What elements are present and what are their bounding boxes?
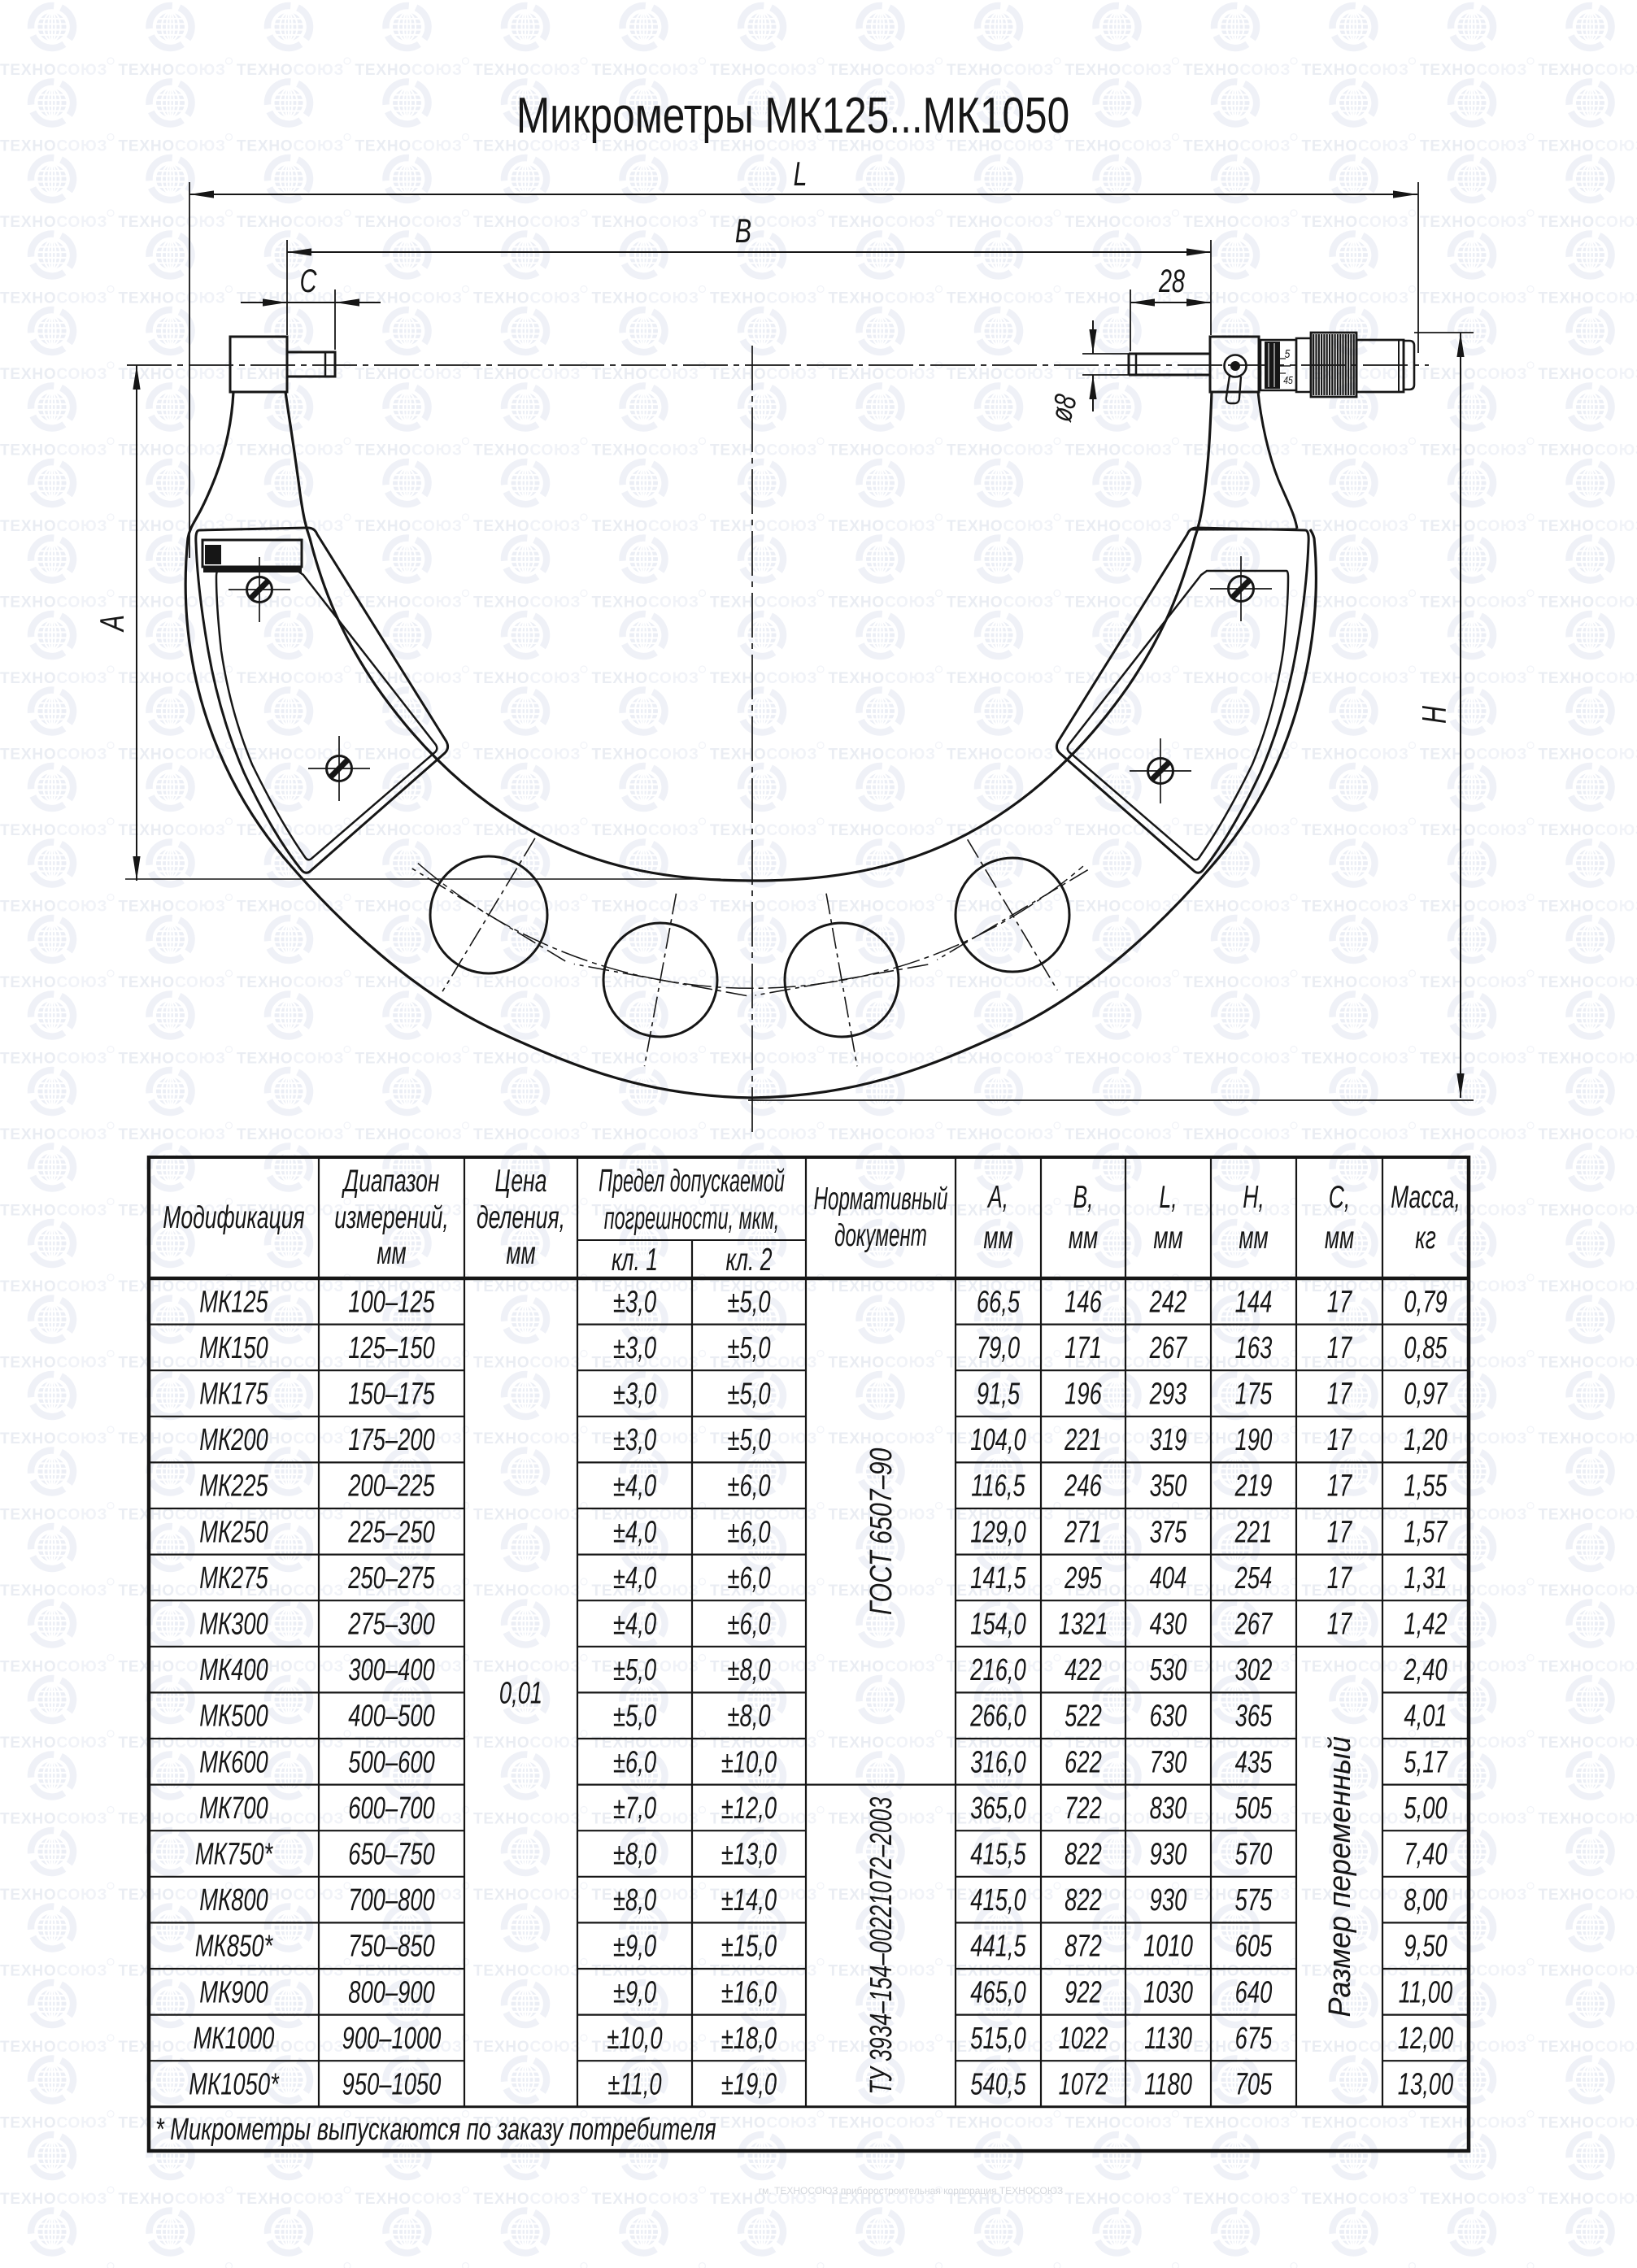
svg-text:МК800: МК800 [199, 1883, 268, 1918]
svg-text:МК225: МК225 [199, 1469, 268, 1503]
svg-text:622: 622 [1064, 1745, 1102, 1779]
svg-text:кл. 2: кл. 2 [726, 1243, 773, 1278]
svg-text:45: 45 [1283, 375, 1293, 386]
svg-text:МК600: МК600 [199, 1745, 268, 1779]
svg-text:Микрометры МК125...МК1050: Микрометры МК125...МК1050 [516, 87, 1069, 144]
svg-text:11,00: 11,00 [1399, 1975, 1453, 2009]
svg-text:4,01: 4,01 [1404, 1699, 1447, 1733]
svg-text:822: 822 [1064, 1883, 1102, 1918]
svg-text:0,01: 0,01 [499, 1676, 542, 1710]
svg-text:750–850: 750–850 [348, 1929, 435, 1963]
svg-text:кл. 1: кл. 1 [612, 1243, 658, 1278]
svg-text:±6,0: ±6,0 [727, 1561, 771, 1595]
svg-text:17: 17 [1327, 1515, 1353, 1549]
svg-text:422: 422 [1064, 1653, 1102, 1687]
svg-text:L: L [794, 155, 808, 193]
svg-text:141,5: 141,5 [970, 1561, 1026, 1595]
svg-text:МК125: МК125 [199, 1285, 268, 1319]
svg-text:430: 430 [1150, 1607, 1187, 1641]
svg-text:822: 822 [1064, 1837, 1102, 1871]
svg-text:±3,0: ±3,0 [613, 1331, 657, 1365]
svg-text:830: 830 [1150, 1791, 1187, 1826]
svg-text:±5,0: ±5,0 [727, 1377, 771, 1411]
svg-text:350: 350 [1150, 1469, 1187, 1503]
svg-text:175: 175 [1235, 1377, 1273, 1411]
svg-text:5,17: 5,17 [1404, 1745, 1448, 1779]
svg-text:±6,0: ±6,0 [727, 1515, 771, 1549]
svg-text:±4,0: ±4,0 [613, 1469, 657, 1503]
svg-text:225–250: 225–250 [347, 1515, 435, 1549]
svg-text:МК400: МК400 [199, 1653, 268, 1687]
svg-text:465,0: 465,0 [970, 1975, 1026, 2009]
svg-text:Размер переменный: Размер переменный [1321, 1736, 1356, 2017]
svg-text:В,: В, [1073, 1180, 1093, 1215]
svg-text:575: 575 [1235, 1883, 1273, 1918]
svg-text:±8,0: ±8,0 [727, 1653, 771, 1687]
svg-text:163: 163 [1235, 1331, 1273, 1365]
svg-text:175–200: 175–200 [348, 1423, 435, 1457]
svg-text:91,5: 91,5 [977, 1377, 1021, 1411]
svg-text:522: 522 [1064, 1699, 1102, 1733]
svg-text:515,0: 515,0 [970, 2022, 1026, 2056]
svg-text:17: 17 [1327, 1469, 1353, 1503]
svg-text:0,97: 0,97 [1404, 1377, 1448, 1411]
svg-text:0,79: 0,79 [1404, 1285, 1447, 1319]
svg-text:МК1000: МК1000 [194, 2022, 275, 2056]
svg-text:Предел допускаемой: Предел допускаемой [599, 1163, 785, 1199]
svg-text:±4,0: ±4,0 [613, 1515, 657, 1549]
svg-text:505: 505 [1235, 1791, 1273, 1826]
svg-text:Цена: Цена [495, 1164, 547, 1199]
svg-text:605: 605 [1235, 1929, 1273, 1963]
svg-text:±10,0: ±10,0 [721, 1745, 777, 1779]
svg-text:79,0: 79,0 [977, 1331, 1021, 1365]
svg-text:1030: 1030 [1143, 1975, 1193, 2009]
svg-text:1,57: 1,57 [1404, 1515, 1448, 1549]
svg-text:±14,0: ±14,0 [721, 1883, 777, 1918]
svg-text:700–800: 700–800 [348, 1883, 435, 1918]
svg-text:146: 146 [1064, 1285, 1102, 1319]
svg-text:МК200: МК200 [199, 1423, 268, 1457]
svg-text:13,00: 13,00 [1398, 2067, 1454, 2101]
svg-text:1130: 1130 [1144, 2022, 1192, 2056]
svg-text:±4,0: ±4,0 [613, 1607, 657, 1641]
svg-text:1010: 1010 [1143, 1929, 1193, 1963]
svg-text:242: 242 [1149, 1285, 1186, 1319]
svg-text:300–400: 300–400 [348, 1653, 435, 1687]
svg-text:17: 17 [1327, 1377, 1353, 1411]
svg-text:±10,0: ±10,0 [607, 2022, 663, 2056]
svg-text:730: 730 [1150, 1745, 1187, 1779]
svg-text:66,5: 66,5 [977, 1285, 1021, 1319]
svg-text:±6,0: ±6,0 [727, 1469, 771, 1503]
svg-text:МК300: МК300 [199, 1607, 268, 1641]
svg-text:мм: мм [1325, 1221, 1354, 1256]
svg-text:319: 319 [1150, 1423, 1187, 1457]
svg-text:ГОСТ 6507–90: ГОСТ 6507–90 [864, 1448, 899, 1615]
svg-text:435: 435 [1235, 1745, 1273, 1779]
svg-text:540,5: 540,5 [970, 2067, 1026, 2101]
svg-text:2,40: 2,40 [1404, 1653, 1448, 1687]
svg-text:±8,0: ±8,0 [613, 1837, 657, 1871]
svg-text:267: 267 [1149, 1331, 1188, 1365]
svg-text:Диапазон: Диапазон [341, 1164, 439, 1199]
svg-text:±4,0: ±4,0 [613, 1561, 657, 1595]
svg-text:МК150: МК150 [199, 1331, 268, 1365]
svg-text:измерений,: измерений, [334, 1200, 449, 1235]
svg-text:5,00: 5,00 [1404, 1791, 1448, 1826]
svg-text:404: 404 [1150, 1561, 1187, 1595]
svg-text:219: 219 [1234, 1469, 1272, 1503]
svg-text:кг: кг [1415, 1221, 1436, 1256]
svg-text:0,85: 0,85 [1404, 1331, 1448, 1365]
svg-text:±9,0: ±9,0 [613, 1929, 657, 1963]
svg-text:МК175: МК175 [199, 1377, 268, 1411]
svg-text:705: 705 [1235, 2067, 1273, 2101]
svg-text:28: 28 [1158, 263, 1185, 299]
svg-text:9,50: 9,50 [1404, 1929, 1448, 1963]
svg-text:Модификация: Модификация [163, 1200, 305, 1235]
svg-text:±7,0: ±7,0 [613, 1791, 657, 1826]
svg-text:±5,0: ±5,0 [727, 1423, 771, 1457]
svg-text:1321: 1321 [1059, 1607, 1108, 1641]
svg-text:МК275: МК275 [199, 1561, 268, 1595]
svg-text:Масса,: Масса, [1391, 1180, 1461, 1215]
svg-text:±3,0: ±3,0 [613, 1377, 657, 1411]
svg-text:640: 640 [1235, 1975, 1273, 2009]
svg-text:100–125: 100–125 [348, 1285, 435, 1319]
svg-text:266,0: 266,0 [969, 1699, 1026, 1733]
svg-text:МК850*: МК850* [195, 1929, 273, 1963]
svg-text:930: 930 [1150, 1883, 1187, 1918]
svg-text:246: 246 [1064, 1469, 1102, 1503]
svg-text:500–600: 500–600 [348, 1745, 435, 1779]
svg-text:922: 922 [1064, 1975, 1102, 2009]
svg-text:17: 17 [1327, 1285, 1353, 1319]
svg-text:630: 630 [1150, 1699, 1187, 1733]
svg-text:17: 17 [1327, 1331, 1353, 1365]
svg-text:400–500: 400–500 [348, 1699, 435, 1733]
svg-text:МК700: МК700 [199, 1791, 268, 1826]
svg-text:600–700: 600–700 [348, 1791, 435, 1826]
svg-text:C: C [300, 263, 317, 299]
svg-text:L,: L, [1159, 1180, 1177, 1215]
svg-text:ТУ 3934–154–00221072–2003: ТУ 3934–154–00221072–2003 [863, 1797, 898, 2095]
svg-text:±3,0: ±3,0 [613, 1285, 657, 1319]
svg-text:930: 930 [1150, 1837, 1187, 1871]
svg-text:221: 221 [1064, 1423, 1101, 1457]
svg-text:275–300: 275–300 [347, 1607, 435, 1641]
svg-text:±5,0: ±5,0 [613, 1699, 657, 1733]
svg-text:±9,0: ±9,0 [613, 1975, 657, 2009]
svg-text:±8,0: ±8,0 [727, 1699, 771, 1733]
svg-text:МК1050*: МК1050* [189, 2067, 279, 2101]
svg-text:950–1050: 950–1050 [342, 2067, 442, 2101]
svg-text:271: 271 [1064, 1515, 1101, 1549]
svg-text:±16,0: ±16,0 [721, 1975, 777, 2009]
svg-text:1,42: 1,42 [1404, 1607, 1447, 1641]
svg-text:±5,0: ±5,0 [727, 1331, 771, 1365]
svg-text:1,55: 1,55 [1404, 1469, 1448, 1503]
svg-text:125–150: 125–150 [348, 1331, 435, 1365]
svg-text:200–225: 200–225 [347, 1469, 435, 1503]
svg-text:129,0: 129,0 [970, 1515, 1026, 1549]
svg-text:365: 365 [1235, 1699, 1273, 1733]
svg-text:295: 295 [1064, 1561, 1102, 1595]
svg-text:А,: А, [986, 1180, 1008, 1215]
svg-text:254: 254 [1234, 1561, 1272, 1595]
svg-text:375: 375 [1150, 1515, 1187, 1549]
svg-text:* Микрометры выпускаются по за: * Микрометры выпускаются по заказу потре… [155, 2113, 716, 2147]
svg-text:погрешности, мкм,: погрешности, мкм, [604, 1200, 780, 1236]
svg-text:документ: документ [834, 1217, 927, 1252]
svg-text:250–275: 250–275 [347, 1561, 435, 1595]
svg-text:±5,0: ±5,0 [727, 1285, 771, 1319]
svg-text:675: 675 [1235, 2022, 1273, 2056]
svg-text:104,0: 104,0 [970, 1423, 1026, 1457]
svg-text:900–1000: 900–1000 [342, 2022, 442, 2056]
svg-text:150–175: 150–175 [348, 1377, 435, 1411]
svg-text:17: 17 [1327, 1423, 1353, 1457]
svg-text:МК250: МК250 [199, 1515, 268, 1549]
svg-text:±19,0: ±19,0 [721, 2067, 777, 2101]
svg-text:H: H [1415, 706, 1453, 724]
svg-text:530: 530 [1150, 1653, 1187, 1687]
svg-text:1180: 1180 [1144, 2067, 1192, 2101]
svg-text:190: 190 [1235, 1423, 1273, 1457]
svg-text:872: 872 [1064, 1929, 1102, 1963]
svg-text:±13,0: ±13,0 [721, 1837, 777, 1871]
svg-text:800–900: 800–900 [348, 1975, 435, 2009]
svg-text:722: 722 [1064, 1791, 1102, 1826]
svg-text:154,0: 154,0 [970, 1607, 1026, 1641]
svg-text:±6,0: ±6,0 [727, 1607, 771, 1641]
svg-text:7,40: 7,40 [1404, 1837, 1448, 1871]
svg-text:мм: мм [506, 1236, 535, 1271]
svg-text:171: 171 [1064, 1331, 1102, 1365]
svg-text:8,00: 8,00 [1404, 1883, 1448, 1918]
svg-text:мм: мм [377, 1236, 406, 1271]
svg-text:мм: мм [1069, 1221, 1098, 1256]
svg-text:±8,0: ±8,0 [613, 1883, 657, 1918]
svg-text:650–750: 650–750 [348, 1837, 435, 1871]
svg-text:415,0: 415,0 [970, 1883, 1026, 1918]
svg-text:116,5: 116,5 [971, 1469, 1025, 1503]
svg-text:17: 17 [1327, 1561, 1353, 1595]
svg-text:267: 267 [1234, 1607, 1273, 1641]
svg-text:196: 196 [1064, 1377, 1102, 1411]
svg-text:деления,: деления, [477, 1200, 565, 1235]
svg-text:17: 17 [1327, 1607, 1353, 1641]
svg-text:МК500: МК500 [199, 1699, 268, 1733]
svg-text:Нормативный: Нормативный [814, 1181, 948, 1216]
svg-text:±15,0: ±15,0 [721, 1929, 777, 1963]
svg-text:B: B [735, 211, 751, 250]
svg-text:±11,0: ±11,0 [607, 2067, 662, 2101]
svg-text:12,00: 12,00 [1398, 2022, 1454, 2056]
svg-text:МК900: МК900 [199, 1975, 268, 2009]
svg-text:1072: 1072 [1059, 2067, 1108, 2101]
svg-text:144: 144 [1235, 1285, 1273, 1319]
svg-text:570: 570 [1235, 1837, 1273, 1871]
svg-text:±6,0: ±6,0 [613, 1745, 657, 1779]
svg-text:1,31: 1,31 [1404, 1561, 1447, 1595]
svg-text:Н,: Н, [1243, 1180, 1265, 1215]
svg-text:мм: мм [983, 1221, 1012, 1256]
svg-text:МК750*: МК750* [195, 1837, 273, 1871]
svg-text:365,0: 365,0 [970, 1791, 1026, 1826]
svg-text:441,5: 441,5 [970, 1929, 1026, 1963]
svg-text:A: A [93, 615, 131, 633]
svg-text:1022: 1022 [1059, 2022, 1108, 2056]
svg-text:±18,0: ±18,0 [721, 2022, 777, 2056]
svg-text:316,0: 316,0 [970, 1745, 1026, 1779]
svg-text:±5,0: ±5,0 [613, 1653, 657, 1687]
svg-text:±12,0: ±12,0 [721, 1791, 777, 1826]
svg-text:С,: С, [1329, 1180, 1351, 1215]
svg-text:415,5: 415,5 [970, 1837, 1026, 1871]
svg-text:1,20: 1,20 [1404, 1423, 1448, 1457]
svg-text:±3,0: ±3,0 [613, 1423, 657, 1457]
svg-text:гм. ТЕХНОСОЮЗ приборостроител: гм. ТЕХНОСОЮЗ приборостроительная корпор… [759, 2185, 1064, 2196]
svg-text:мм: мм [1239, 1221, 1268, 1256]
svg-text:221: 221 [1234, 1515, 1272, 1549]
svg-text:мм: мм [1153, 1221, 1182, 1256]
svg-text:216,0: 216,0 [969, 1653, 1026, 1687]
svg-text:293: 293 [1149, 1377, 1187, 1411]
svg-text:302: 302 [1235, 1653, 1273, 1687]
